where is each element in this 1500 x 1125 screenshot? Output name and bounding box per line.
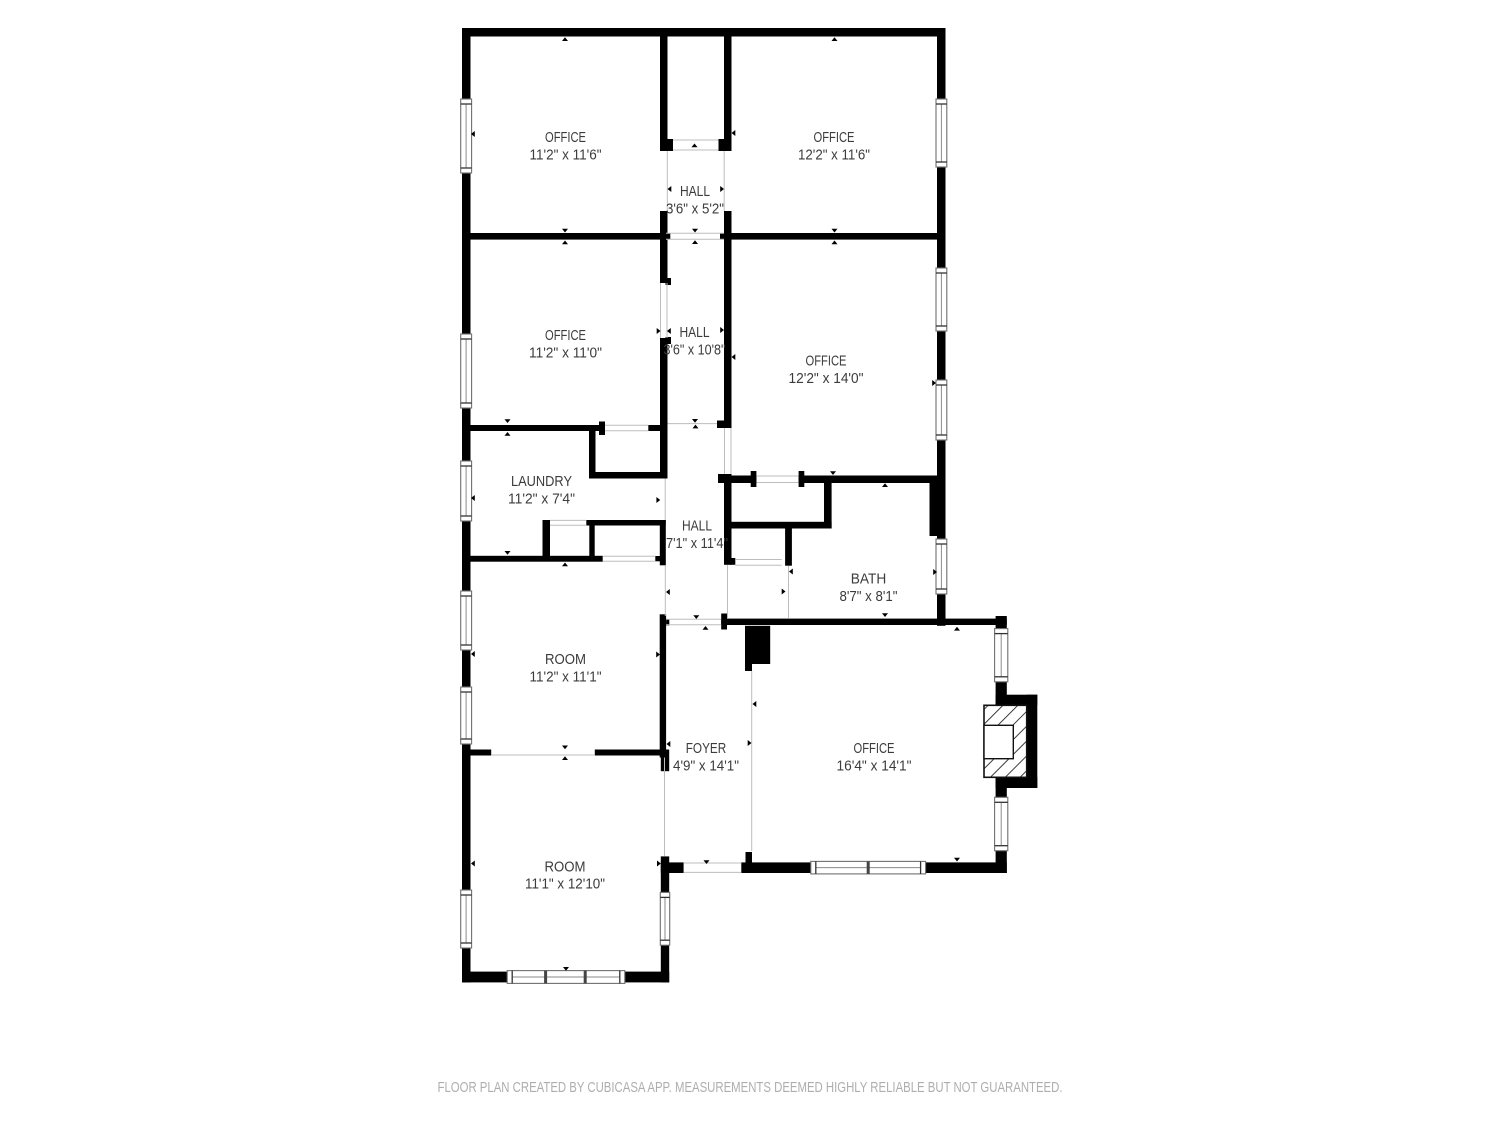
svg-text:7'1" x 11'4": 7'1" x 11'4" [666,536,728,552]
svg-text:3'6" x 5'2": 3'6" x 5'2" [666,202,724,218]
svg-text:HALL: HALL [680,184,710,200]
svg-text:11'2" x 11'1": 11'2" x 11'1" [530,669,602,685]
svg-text:11'2" x 11'0": 11'2" x 11'0" [529,345,602,361]
svg-text:OFFICE: OFFICE [854,741,895,757]
svg-text:4'9" x 14'1": 4'9" x 14'1" [673,758,739,774]
svg-text:LAUNDRY: LAUNDRY [511,474,572,490]
svg-text:12'2" x 11'6": 12'2" x 11'6" [798,148,870,164]
svg-text:11'2" x 7'4": 11'2" x 7'4" [508,491,575,507]
svg-text:BATH: BATH [851,571,887,587]
svg-text:ROOM: ROOM [545,652,586,668]
svg-text:3'6" x 10'8": 3'6" x 10'8" [664,342,726,358]
svg-text:OFFICE: OFFICE [814,130,855,146]
svg-text:FOYER: FOYER [686,741,727,757]
svg-text:16'4" x 14'1": 16'4" x 14'1" [837,758,912,774]
svg-text:OFFICE: OFFICE [545,130,586,146]
svg-text:11'2" x 11'6": 11'2" x 11'6" [530,148,602,164]
svg-text:ROOM: ROOM [545,859,586,875]
svg-text:11'1" x 12'10": 11'1" x 12'10" [525,877,605,893]
svg-text:12'2" x 14'0": 12'2" x 14'0" [789,371,864,387]
svg-text:OFFICE: OFFICE [545,328,586,344]
svg-text:FLOOR PLAN CREATED BY CUBICASA: FLOOR PLAN CREATED BY CUBICASA APP. MEAS… [438,1079,1063,1096]
svg-text:HALL: HALL [680,325,710,341]
svg-text:8'7" x 8'1": 8'7" x 8'1" [840,589,898,605]
svg-text:OFFICE: OFFICE [806,354,847,370]
svg-text:HALL: HALL [682,519,712,535]
